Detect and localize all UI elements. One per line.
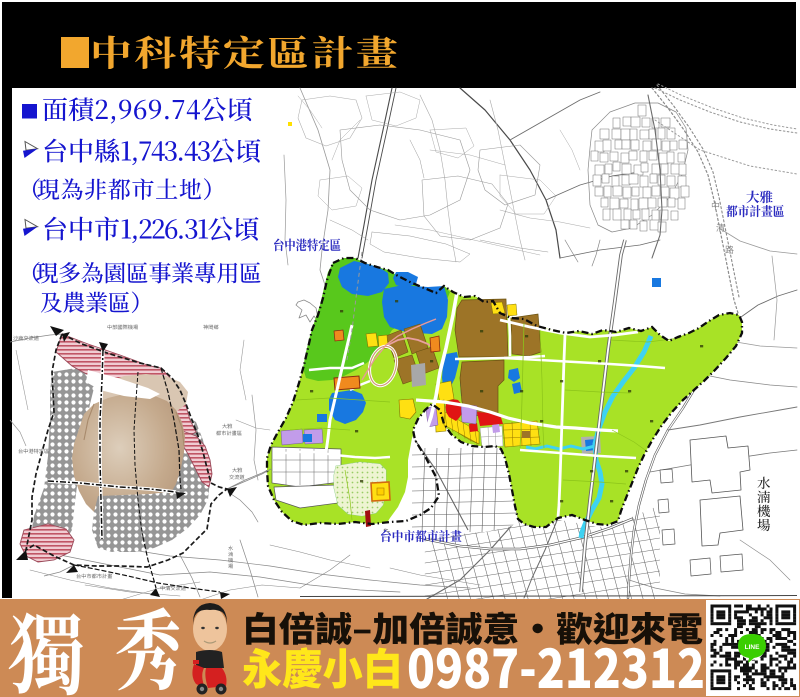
svg-text:LINE: LINE (745, 644, 760, 651)
